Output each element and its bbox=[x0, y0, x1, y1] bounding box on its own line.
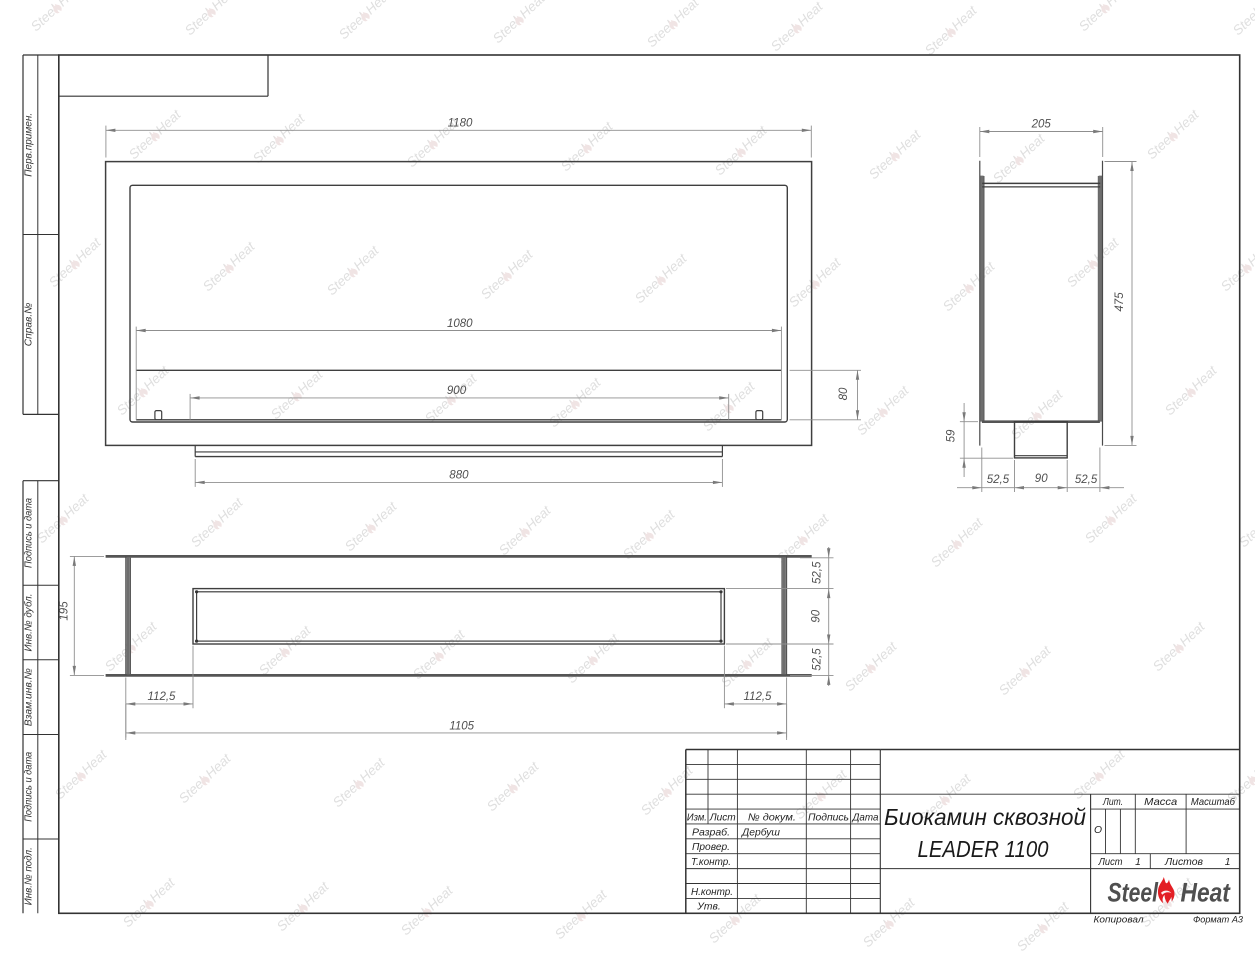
svg-text:Взам.инв.№: Взам.инв.№ bbox=[24, 668, 35, 726]
svg-text:Т.контр.: Т.контр. bbox=[691, 857, 731, 868]
svg-text:52,5: 52,5 bbox=[987, 474, 1010, 486]
svg-text:Масштаб: Масштаб bbox=[1191, 796, 1236, 808]
svg-text:1105: 1105 bbox=[449, 720, 474, 732]
svg-text:Лит.: Лит. bbox=[1102, 797, 1123, 808]
svg-text:Heat: Heat bbox=[1181, 878, 1232, 908]
svg-text:90: 90 bbox=[811, 609, 823, 622]
svg-text:Лист: Лист bbox=[1098, 857, 1123, 868]
svg-text:112,5: 112,5 bbox=[148, 691, 177, 703]
svg-text:1080: 1080 bbox=[447, 318, 473, 330]
svg-text:Масса: Масса bbox=[1144, 797, 1177, 808]
svg-text:80: 80 bbox=[838, 387, 850, 400]
svg-text:Формат A3: Формат A3 bbox=[1193, 915, 1244, 926]
svg-text:LEADER 1100: LEADER 1100 bbox=[918, 836, 1049, 862]
svg-text:Инв.№ подл.: Инв.№ подл. bbox=[24, 847, 35, 905]
svg-text:Провер.: Провер. bbox=[692, 842, 730, 853]
svg-text:Разраб.: Разраб. bbox=[692, 826, 730, 838]
svg-text:Биокамин сквозной: Биокамин сквозной bbox=[884, 804, 1086, 830]
svg-text:52,5: 52,5 bbox=[1075, 474, 1098, 486]
svg-text:Листов: Листов bbox=[1164, 857, 1204, 868]
svg-text:205: 205 bbox=[1031, 119, 1052, 131]
svg-text:880: 880 bbox=[449, 470, 469, 482]
svg-text:Утв.: Утв. bbox=[696, 902, 720, 913]
svg-text:1: 1 bbox=[1225, 857, 1231, 868]
svg-text:Перв.примен.: Перв.примен. bbox=[24, 113, 35, 177]
svg-text:Инв.№ дубл.: Инв.№ дубл. bbox=[23, 594, 35, 652]
svg-text:№ докум.: № докум. bbox=[748, 812, 796, 823]
svg-text:Подпись: Подпись bbox=[808, 812, 849, 823]
svg-text:Дата: Дата bbox=[852, 812, 879, 823]
svg-text:О: О bbox=[1094, 825, 1102, 836]
svg-text:90: 90 bbox=[1035, 473, 1048, 485]
svg-text:Steel: Steel bbox=[1108, 878, 1160, 908]
svg-text:1180: 1180 bbox=[448, 118, 473, 130]
svg-text:Копировал: Копировал bbox=[1094, 915, 1145, 926]
svg-text:1: 1 bbox=[1135, 857, 1141, 868]
svg-text:Н.контр.: Н.контр. bbox=[691, 887, 733, 898]
svg-text:112,5: 112,5 bbox=[744, 691, 773, 703]
svg-text:Справ.№: Справ.№ bbox=[24, 303, 35, 346]
svg-text:52,5: 52,5 bbox=[811, 561, 823, 584]
svg-text:Подпись и дата: Подпись и дата bbox=[24, 752, 35, 822]
svg-text:Дербуш: Дербуш bbox=[741, 826, 780, 838]
svg-text:195: 195 bbox=[59, 601, 71, 621]
svg-text:52,5: 52,5 bbox=[811, 648, 823, 671]
svg-text:Лист: Лист bbox=[709, 812, 736, 823]
svg-text:Подпись и дата: Подпись и дата bbox=[24, 498, 35, 568]
svg-text:475: 475 bbox=[1114, 292, 1126, 312]
svg-text:900: 900 bbox=[447, 385, 467, 397]
svg-text:59: 59 bbox=[946, 429, 958, 442]
svg-text:Изм.: Изм. bbox=[687, 812, 707, 823]
